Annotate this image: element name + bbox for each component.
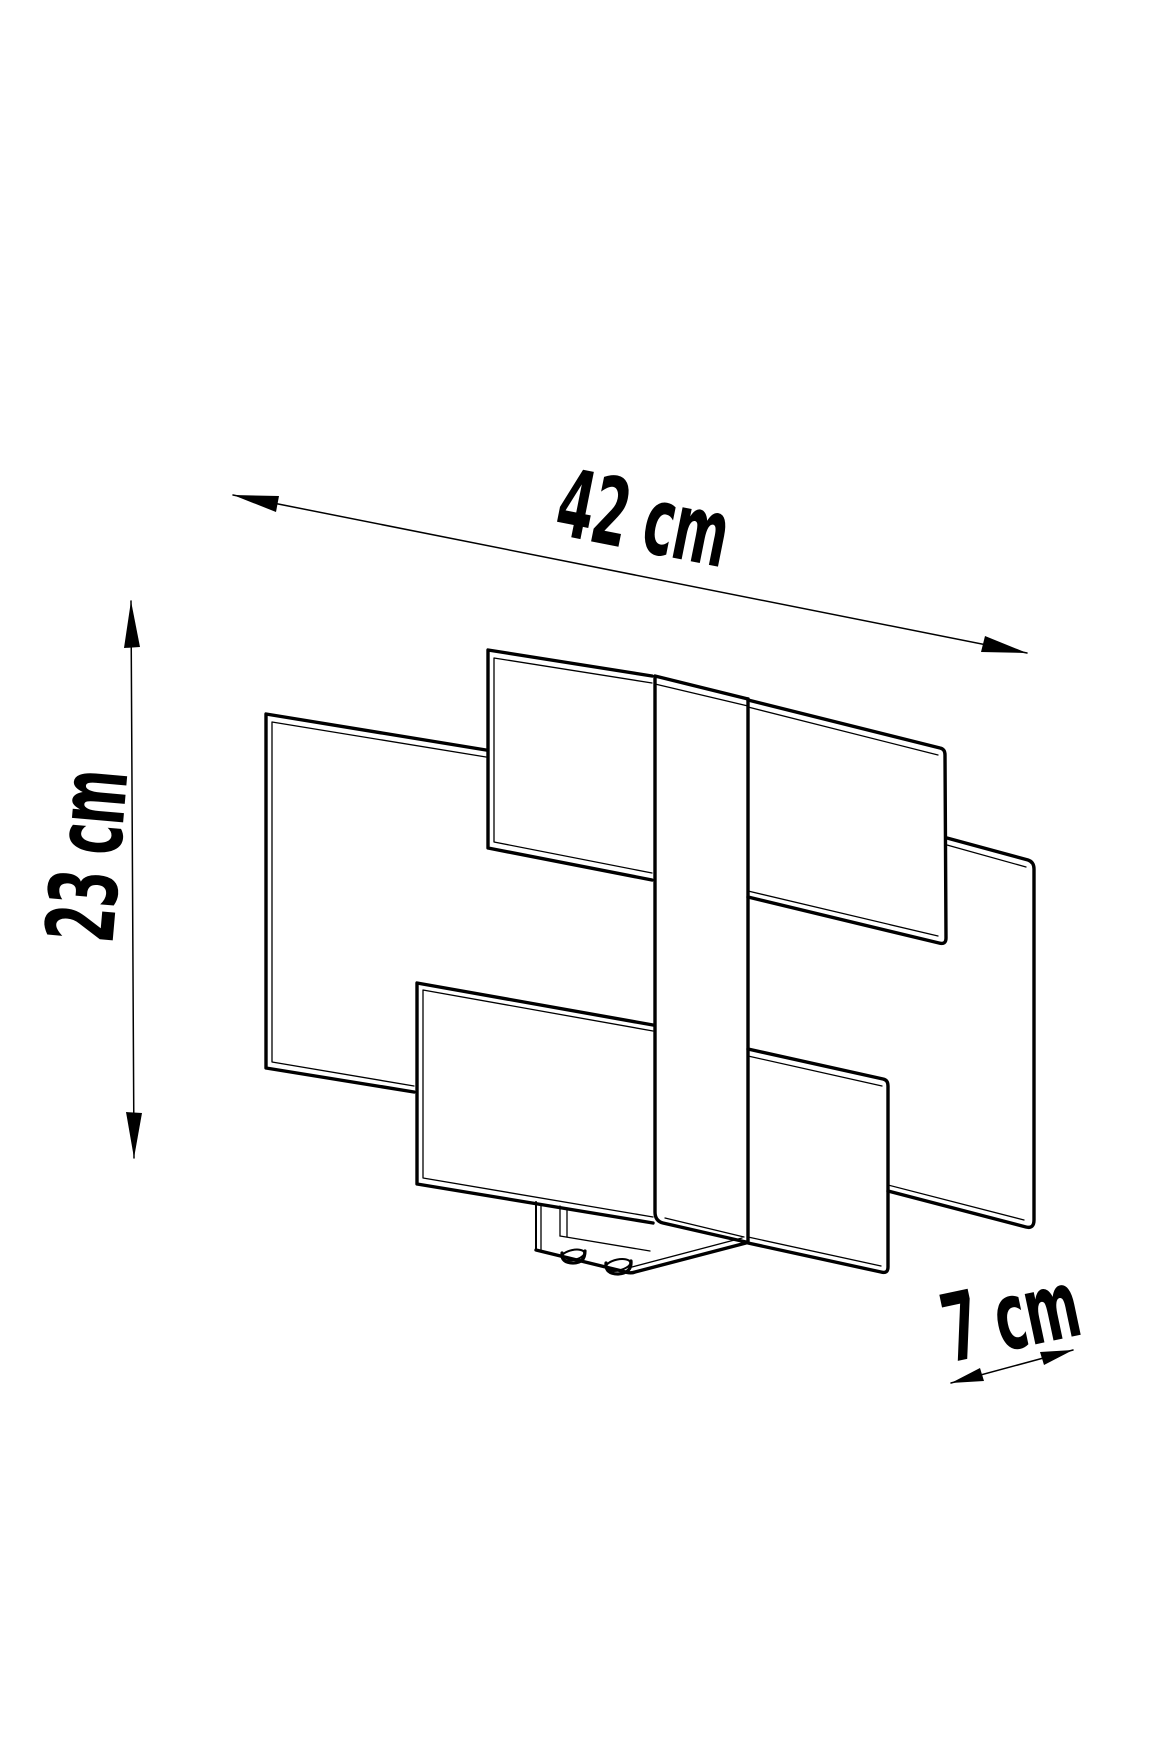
panel-upper-right (748, 700, 946, 943)
center-column (655, 676, 748, 1242)
width-arrowhead-left (233, 495, 279, 512)
height-arrowhead-top (124, 601, 140, 648)
height-dimension-label: 23 cm (25, 766, 149, 947)
lamp-line-drawing (131, 495, 1073, 1383)
width-dimension-label: 42 cm (548, 448, 738, 589)
panel-upper-left (488, 650, 652, 880)
height-arrowhead-bottom (126, 1112, 142, 1158)
width-arrowhead-right (981, 636, 1027, 653)
dimension-diagram-canvas: 42 cm 23 cm 7 cm (0, 0, 1169, 1752)
panel-lower-front-right (748, 1049, 888, 1272)
depth-dimension-label: 7 cm (932, 1248, 1088, 1384)
panel-left-rear (266, 714, 486, 1092)
dimension-labels: 42 cm 23 cm 7 cm (25, 448, 1088, 1385)
panel-lower-front-left (417, 983, 653, 1223)
screw-right (605, 1257, 632, 1274)
diagram-page: 42 cm 23 cm 7 cm (0, 0, 1169, 1752)
panel-right-rear (888, 838, 1034, 1227)
